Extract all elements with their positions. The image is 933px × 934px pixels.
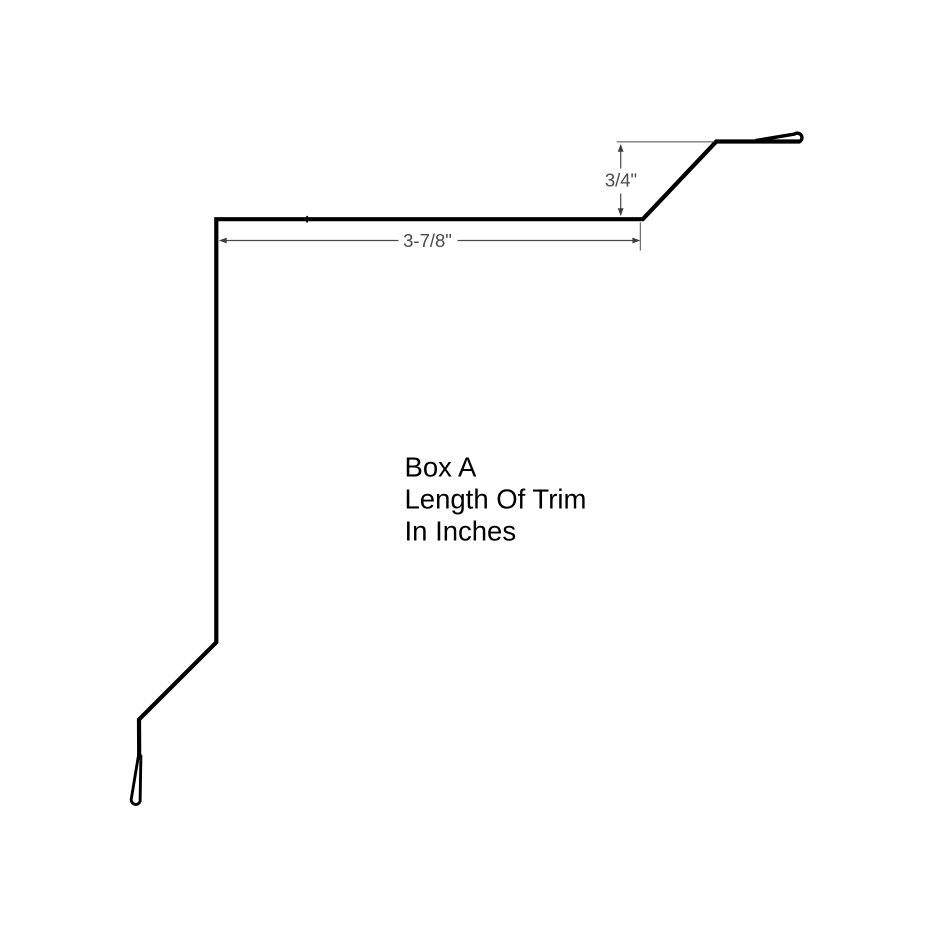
svg-text:3/4": 3/4" <box>605 170 637 191</box>
svg-text:In Inches: In Inches <box>405 515 517 546</box>
svg-text:3-7/8": 3-7/8" <box>403 230 452 251</box>
svg-text:Box A: Box A <box>405 451 478 482</box>
svg-text:Length Of Trim: Length Of Trim <box>405 483 587 514</box>
